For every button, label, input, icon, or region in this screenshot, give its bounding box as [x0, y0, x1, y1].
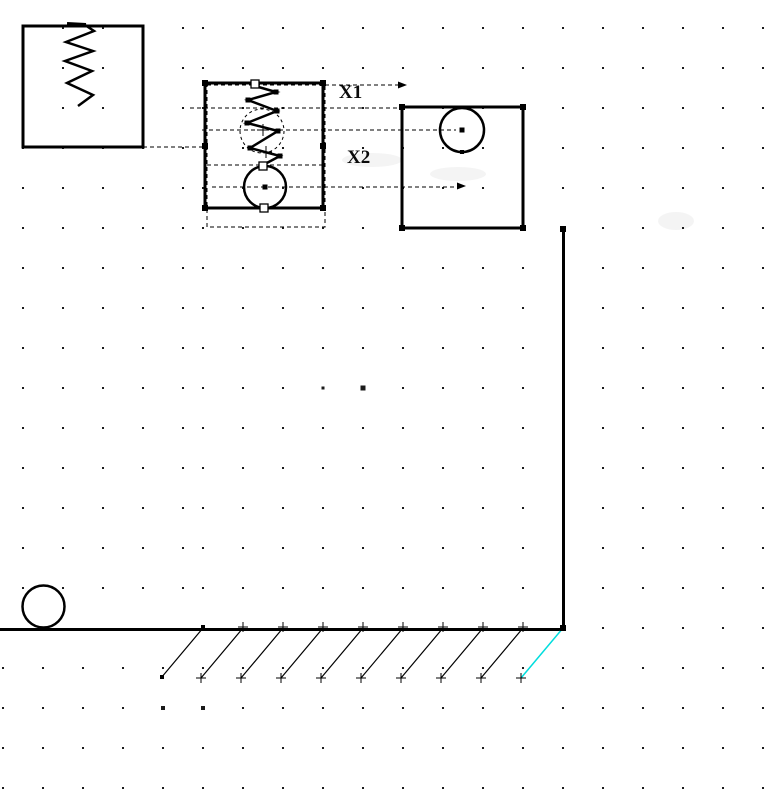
selection-handle[interactable] [520, 104, 526, 110]
grid-dot [402, 67, 404, 69]
spring-vertex-dot [275, 109, 280, 114]
grid-dot [402, 467, 404, 469]
grid-dot [722, 187, 724, 189]
grid-dot [682, 787, 684, 789]
grid-dot [642, 387, 644, 389]
grid-dot [102, 547, 104, 549]
grid-dot [22, 267, 24, 269]
grid-dot [442, 507, 444, 509]
grid-dot [642, 267, 644, 269]
grid-dot [202, 547, 204, 549]
grid-dot [482, 387, 484, 389]
selection-handle[interactable] [202, 143, 208, 149]
grid-dot [282, 707, 284, 709]
grid-dot [22, 187, 24, 189]
grid-dot [522, 27, 524, 29]
grid-dot [182, 587, 184, 589]
grid-dot [682, 627, 684, 629]
grid-dot [762, 147, 764, 149]
grid-dot [762, 387, 764, 389]
grid-dot [722, 747, 724, 749]
grid-dot [22, 307, 24, 309]
grid-dot [22, 387, 24, 389]
grid-dot [482, 467, 484, 469]
grid-dot [162, 787, 164, 789]
grid-dot [182, 387, 184, 389]
grid-dot [282, 347, 284, 349]
grid-dot [82, 707, 84, 709]
grid-dot [242, 547, 244, 549]
grid-dot [402, 387, 404, 389]
grid-dot [202, 427, 204, 429]
grid-dot [322, 667, 324, 669]
arrowhead-x1 [398, 82, 407, 89]
grid-dot [282, 67, 284, 69]
endpoint-handle[interactable] [260, 204, 268, 212]
grid-dot [102, 507, 104, 509]
grid-dot [182, 107, 184, 109]
endpoint-handle[interactable] [259, 162, 267, 170]
grid-dot [242, 427, 244, 429]
grid-dot [482, 547, 484, 549]
grid-dot [562, 747, 564, 749]
grid-dot [102, 387, 104, 389]
grid-dot [642, 787, 644, 789]
grid-dot [442, 547, 444, 549]
grid-dot [242, 587, 244, 589]
grid-dot [2, 747, 4, 749]
grid-dot [361, 386, 366, 391]
grid-dot [722, 347, 724, 349]
grid-dot [402, 427, 404, 429]
grid-dot [142, 307, 144, 309]
grid-dot [482, 147, 484, 149]
grid-dot [642, 627, 644, 629]
grid-dot [722, 507, 724, 509]
selection-handle[interactable] [320, 143, 326, 149]
grid-dot [62, 307, 64, 309]
grid-dot [62, 187, 64, 189]
grid-dot [602, 267, 604, 269]
grid-dot [322, 707, 324, 709]
drawing-canvas[interactable]: X1 X2 [0, 0, 781, 790]
grid-dot [722, 667, 724, 669]
grid-dot [242, 467, 244, 469]
grid-dot [362, 227, 364, 229]
grid-dot [282, 307, 284, 309]
grid-dot [642, 507, 644, 509]
grid-dot [522, 427, 524, 429]
grid-dot [182, 27, 184, 29]
selection-handle[interactable] [320, 205, 326, 211]
grid-dot [242, 147, 244, 149]
grid-dot [102, 267, 104, 269]
grid-dot [602, 227, 604, 229]
grid-dot [202, 787, 204, 789]
grid-dot [682, 507, 684, 509]
grid-dot [762, 467, 764, 469]
grid-dot [362, 267, 364, 269]
grid-dot [482, 187, 484, 189]
grid-dot [602, 667, 604, 669]
grid-dot [602, 627, 604, 629]
grid-dot [482, 347, 484, 349]
grid-dot [202, 67, 204, 69]
grid-dot [402, 747, 404, 749]
grid-dot [482, 67, 484, 69]
grid-dot [722, 547, 724, 549]
grid-dot [62, 427, 64, 429]
grid-dot [62, 507, 64, 509]
dot-grid [2, 27, 764, 789]
selection-handle[interactable] [320, 80, 326, 86]
grid-dot [362, 347, 364, 349]
grid-dot [642, 147, 644, 149]
grid-dot [602, 547, 604, 549]
grid-dot [762, 707, 764, 709]
grid-dot [442, 787, 444, 789]
grid-dot [722, 267, 724, 269]
grid-dot [642, 347, 644, 349]
grid-dot [182, 347, 184, 349]
grid-dot [322, 27, 324, 29]
grid-dot [722, 67, 724, 69]
grid-dot [362, 27, 364, 29]
grid-dot [562, 147, 564, 149]
grid-dot [762, 27, 764, 29]
label-x2[interactable]: X2 [347, 147, 370, 168]
grid-dot [682, 147, 684, 149]
smudge-mark [658, 212, 694, 230]
grid-dot [602, 587, 604, 589]
grid-dot [322, 787, 324, 789]
grid-dot [722, 307, 724, 309]
grid-dot [562, 667, 564, 669]
grid-dot [642, 467, 644, 469]
grid-dot [242, 507, 244, 509]
grid-dot [602, 307, 604, 309]
grid-dot [762, 307, 764, 309]
grid-dot [482, 427, 484, 429]
left-spring[interactable] [65, 25, 94, 106]
grid-dot [122, 667, 124, 669]
grid-dot [162, 667, 164, 669]
grid-dot [522, 787, 524, 789]
label-x1[interactable]: X1 [339, 82, 362, 103]
grid-dot [282, 547, 284, 549]
grid-dot [722, 587, 724, 589]
grid-dot [602, 427, 604, 429]
selection-handle[interactable] [399, 104, 405, 110]
grid-dot [102, 67, 104, 69]
grid-dot [182, 467, 184, 469]
grid-dot [682, 267, 684, 269]
grid-dot [602, 347, 604, 349]
grid-dot [562, 107, 564, 109]
grid-dot [642, 227, 644, 229]
grid-dot [642, 667, 644, 669]
grid-dot [482, 707, 484, 709]
grid-dot [322, 747, 324, 749]
grid-dot [642, 187, 644, 189]
grid-dot [282, 467, 284, 469]
grid-dot [242, 27, 244, 29]
grid-dot [142, 547, 144, 549]
grid-dot [602, 67, 604, 69]
grid-dot [202, 307, 204, 309]
grid-dot [42, 747, 44, 749]
grid-dot [182, 267, 184, 269]
grid-dot [202, 587, 204, 589]
grid-dot [62, 227, 64, 229]
grid-dot [522, 507, 524, 509]
grid-dot [142, 267, 144, 269]
grid-dot [182, 147, 184, 149]
grid-dot [282, 147, 284, 149]
grid-dot [642, 587, 644, 589]
grid-dot [242, 227, 244, 229]
grid-dot [322, 267, 324, 269]
center-dot [263, 185, 268, 190]
grid-dot [22, 427, 24, 429]
grid-dot [602, 747, 604, 749]
hatch-line [361, 628, 403, 678]
grid-dot [402, 307, 404, 309]
grid-dot [42, 667, 44, 669]
grid-dot [142, 347, 144, 349]
grid-dot [122, 707, 124, 709]
selection-handle[interactable] [202, 205, 208, 211]
grid-dot [762, 787, 764, 789]
grid-dot [442, 467, 444, 469]
grid-dot [442, 267, 444, 269]
grid-dot [282, 667, 284, 669]
grid-dot [402, 27, 404, 29]
grid-dot [362, 467, 364, 469]
grid-dot [522, 267, 524, 269]
center-dot [460, 128, 465, 133]
grid-dot [442, 427, 444, 429]
grid-dot [762, 587, 764, 589]
grid-dot [102, 587, 104, 589]
grid-dot [522, 467, 524, 469]
grid-dot [202, 747, 204, 749]
grid-dot [722, 227, 724, 229]
grid-dot [562, 787, 564, 789]
grid-dot [142, 227, 144, 229]
grid-dot [202, 27, 204, 29]
grid-dot [602, 387, 604, 389]
grid-dot [102, 467, 104, 469]
grid-dot [182, 507, 184, 509]
grid-dot [642, 107, 644, 109]
grid-dot [762, 507, 764, 509]
grid-dot [62, 67, 64, 69]
grid-dot [682, 347, 684, 349]
grid-dot [442, 667, 444, 669]
grid-dot [2, 787, 4, 789]
eraser-smudges [342, 153, 694, 230]
grid-dot [102, 427, 104, 429]
grid-dot [642, 307, 644, 309]
grid-dot [522, 547, 524, 549]
grid-dot [762, 347, 764, 349]
grid-dot [102, 107, 104, 109]
grid-dot [522, 347, 524, 349]
grid-dot [202, 227, 204, 229]
grid-dot [762, 627, 764, 629]
spring-vertex-dot [274, 90, 279, 95]
grid-dot [142, 427, 144, 429]
grid-dot [562, 67, 564, 69]
grid-dot [282, 27, 284, 29]
grid-dot [402, 507, 404, 509]
grid-dot [122, 747, 124, 749]
grid-dot [722, 467, 724, 469]
hatch-line [401, 628, 443, 678]
grid-dot [242, 307, 244, 309]
grid-dot [482, 787, 484, 789]
grid-dot [142, 187, 144, 189]
selection-handle[interactable] [202, 80, 208, 86]
grid-dot [722, 27, 724, 29]
grid-dot [322, 67, 324, 69]
grid-dot [62, 467, 64, 469]
selection-handle[interactable] [520, 225, 526, 231]
grid-dot [102, 227, 104, 229]
grid-dot [182, 187, 184, 189]
grid-dot [642, 747, 644, 749]
grid-dot [762, 107, 764, 109]
grid-dot [642, 27, 644, 29]
grid-dot [142, 507, 144, 509]
grid-dot [682, 387, 684, 389]
grid-dot [62, 547, 64, 549]
grid-dot [2, 667, 4, 669]
selection-handle[interactable] [560, 226, 566, 232]
rolling-ball[interactable] [23, 586, 65, 628]
grid-dot [2, 707, 4, 709]
grid-dot [602, 707, 604, 709]
grid-dot [402, 587, 404, 589]
grid-dot [242, 667, 244, 669]
grid-dot [482, 667, 484, 669]
grid-dot [142, 587, 144, 589]
grid-dot [442, 587, 444, 589]
grid-dot [62, 387, 64, 389]
grid-dot [402, 707, 404, 709]
grid-dot [362, 667, 364, 669]
grid-dot [482, 747, 484, 749]
grid-dot [402, 547, 404, 549]
grid-dot [762, 747, 764, 749]
grid-dot [762, 187, 764, 189]
grid-dot [362, 67, 364, 69]
scene-svg[interactable]: X1 X2 [0, 0, 781, 790]
grid-dot [42, 707, 44, 709]
grid-dot [682, 587, 684, 589]
grid-dot [642, 67, 644, 69]
grid-dot [602, 507, 604, 509]
grid-dot [762, 267, 764, 269]
grid-dot [242, 747, 244, 749]
grid-dot [202, 387, 204, 389]
grid-dot [282, 507, 284, 509]
grid-dot [762, 427, 764, 429]
grid-dot [682, 467, 684, 469]
hatch-line [481, 628, 523, 678]
arrowhead-x2 [457, 183, 466, 190]
grid-dot [242, 67, 244, 69]
grid-dot [442, 747, 444, 749]
grid-dot [442, 307, 444, 309]
hatch-line [441, 628, 483, 678]
grid-dot [362, 587, 364, 589]
grid-dot [762, 547, 764, 549]
grid-dot [602, 187, 604, 189]
grid-dot [82, 787, 84, 789]
grid-dot [442, 67, 444, 69]
smudge-mark [430, 167, 486, 181]
left-anchor-box[interactable] [23, 26, 143, 147]
grid-dot [522, 307, 524, 309]
selection-handle[interactable] [399, 225, 405, 231]
hatch-line [241, 628, 283, 678]
grid-dot [182, 547, 184, 549]
grid-dot [322, 507, 324, 509]
spring-vertex-dot [246, 98, 251, 103]
grid-dot [522, 387, 524, 389]
spring-vertex-dot [245, 121, 250, 126]
grid-dot [562, 27, 564, 29]
grid-dot [442, 147, 444, 149]
grid-dot [482, 27, 484, 29]
selection-handle[interactable] [560, 625, 566, 631]
grid-dot [82, 667, 84, 669]
grid-dot [682, 547, 684, 549]
grid-dot [242, 267, 244, 269]
grid-dot [182, 227, 184, 229]
grid-dot [142, 467, 144, 469]
grid-dot [722, 707, 724, 709]
grid-dot [282, 587, 284, 589]
grid-dot [62, 587, 64, 589]
grid-dot [762, 67, 764, 69]
highlighted-hatch-line[interactable] [521, 628, 563, 678]
grid-dot [682, 307, 684, 309]
grid-dot [362, 707, 364, 709]
grid-dot [82, 747, 84, 749]
endpoint-handle[interactable] [251, 80, 259, 88]
grid-dot [322, 387, 325, 390]
grid-dot [242, 707, 244, 709]
grid-dot [62, 347, 64, 349]
grid-dot [182, 427, 184, 429]
grid-dot [362, 507, 364, 509]
grid-dot [22, 507, 24, 509]
grid-dot [522, 747, 524, 749]
grid-dot [482, 307, 484, 309]
grid-dot [522, 707, 524, 709]
grid-dot [22, 227, 24, 229]
grid-dot [402, 667, 404, 669]
grid-dot [682, 27, 684, 29]
grid-dot [722, 387, 724, 389]
grid-dot [682, 427, 684, 429]
grid-dot [602, 107, 604, 109]
grid-dot [282, 267, 284, 269]
grid-dot [722, 627, 724, 629]
